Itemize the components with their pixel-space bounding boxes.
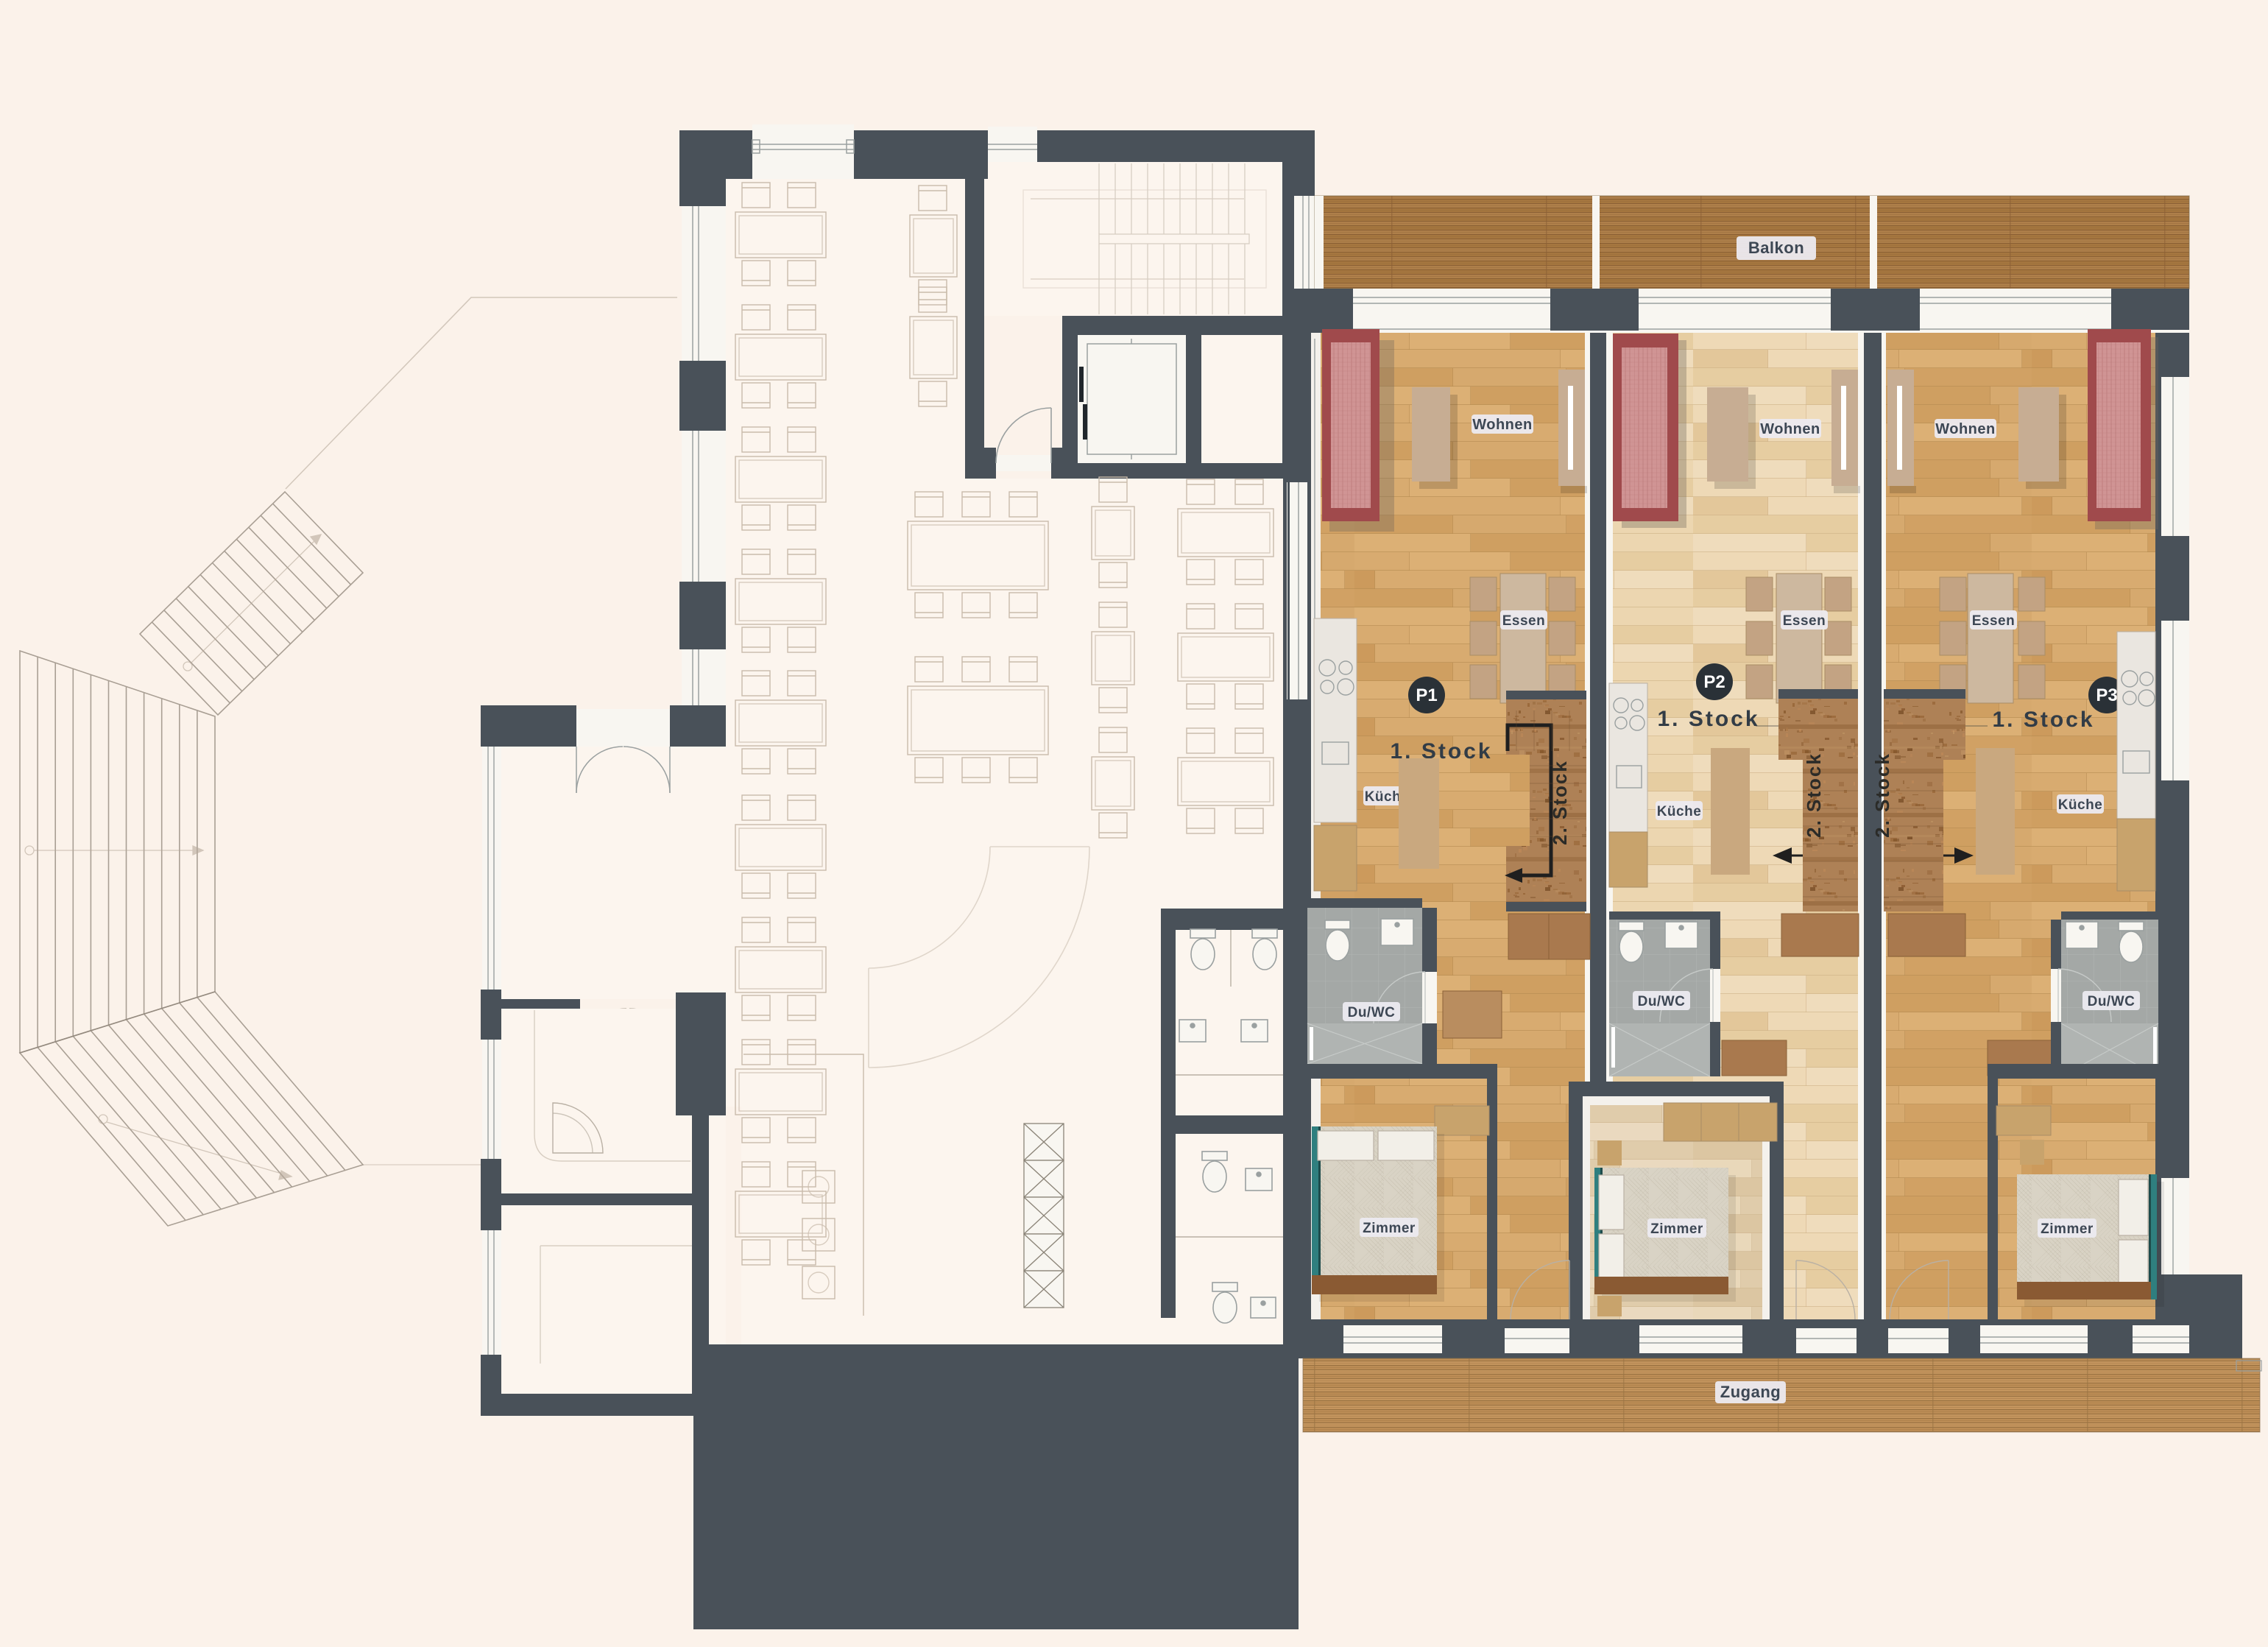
svg-text:Wohnen: Wohnen xyxy=(1472,417,1533,433)
svg-text:2. Stock: 2. Stock xyxy=(1871,752,1893,838)
svg-text:Essen: Essen xyxy=(1502,613,1545,629)
svg-text:Zugang: Zugang xyxy=(1720,1383,1781,1401)
svg-text:Küche: Küche xyxy=(2058,797,2103,813)
svg-text:Zimmer: Zimmer xyxy=(1363,1221,1416,1236)
svg-text:1. Stock: 1. Stock xyxy=(1657,707,1759,731)
svg-text:Wohnen: Wohnen xyxy=(1760,421,1820,437)
svg-text:Balkon: Balkon xyxy=(1748,239,1804,257)
svg-text:P2: P2 xyxy=(1703,672,1725,692)
svg-text:Essen: Essen xyxy=(1972,613,2015,629)
svg-text:Küche: Küche xyxy=(1657,804,1702,819)
svg-text:Wohnen: Wohnen xyxy=(1935,421,1996,437)
svg-text:P3: P3 xyxy=(2096,685,2117,705)
svg-text:Du/WC: Du/WC xyxy=(1638,994,1686,1009)
svg-text:Zimmer: Zimmer xyxy=(1650,1221,1703,1237)
svg-text:Essen: Essen xyxy=(1783,613,1826,629)
svg-text:Du/WC: Du/WC xyxy=(2088,994,2135,1009)
svg-text:2. Stock: 2. Stock xyxy=(1549,760,1571,845)
svg-text:Zimmer: Zimmer xyxy=(2041,1221,2094,1237)
svg-text:2. Stock: 2. Stock xyxy=(1803,752,1825,838)
svg-text:1. Stock: 1. Stock xyxy=(1992,708,2094,732)
svg-text:P1: P1 xyxy=(1416,685,1437,705)
svg-text:Du/WC: Du/WC xyxy=(1348,1005,1396,1020)
